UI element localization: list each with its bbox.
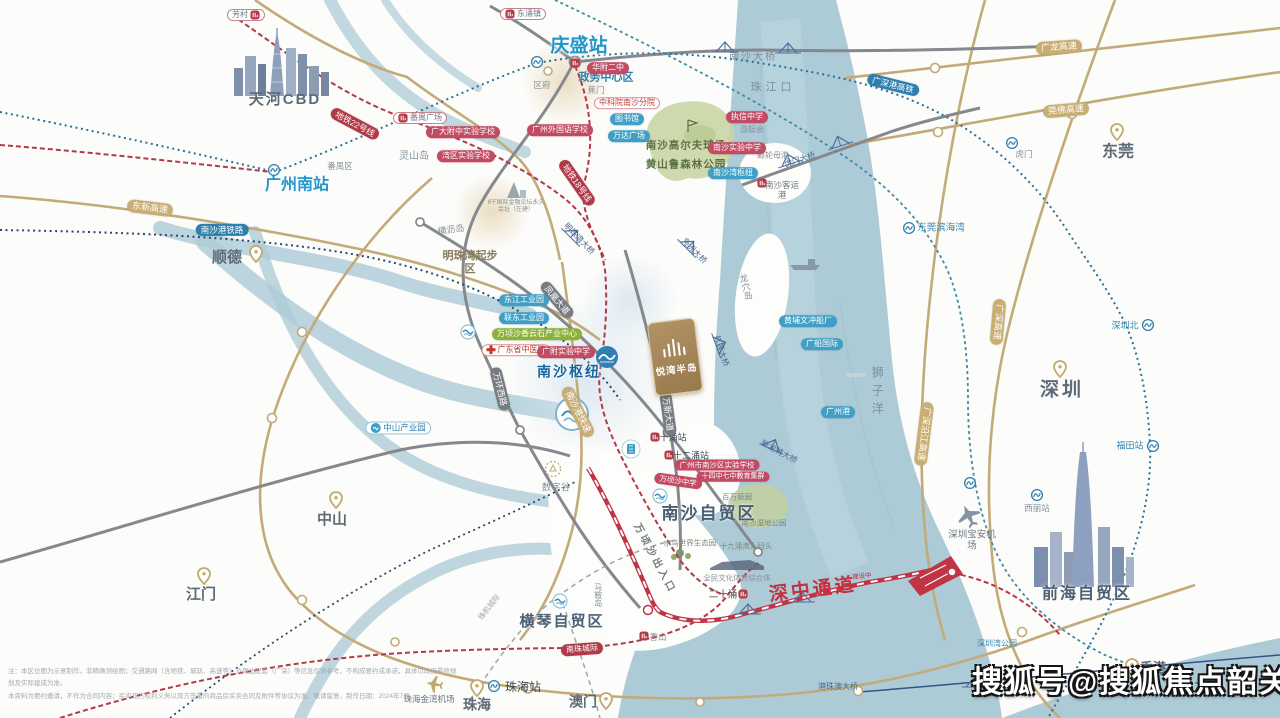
icon-xili-metro xyxy=(1031,489,1044,502)
label-nansha-shidi: 南沙湿地公园 xyxy=(742,519,787,528)
label-baiwankuiyuan: 百万葵园 xyxy=(722,493,752,502)
label-zky: 中科院南沙分院 xyxy=(594,97,660,109)
icon-gznan-metro xyxy=(268,164,281,177)
icon-keyungang-sta xyxy=(757,178,767,188)
label-qianhai-zone: 前海自贸区 xyxy=(1042,584,1132,603)
label-shuiniao: 水鸟世界生态园 xyxy=(664,539,717,548)
label-nansha-bridge: 南沙大桥 xyxy=(729,52,777,64)
label-dongguan-binhaiwan: 东莞滨海湾 xyxy=(917,222,965,233)
pin-aomen xyxy=(599,692,613,710)
label-dongguan: 东莞 xyxy=(1102,142,1134,161)
label-panyu-square: 番禺广场 xyxy=(393,112,447,124)
label-gz-foreign-school: 广州外国语学校 xyxy=(527,124,593,136)
label-nansha-hub: 南沙枢纽 xyxy=(537,364,601,381)
label-zhuhai-station: 珠海站 xyxy=(505,680,541,694)
label-shenzhen: 深圳 xyxy=(1040,380,1084,403)
icon-humen-metro xyxy=(1006,137,1019,150)
label-gzport: 广州港 xyxy=(821,406,855,418)
label-panyuqu: 番禺区 xyxy=(327,161,353,171)
label-xiangshan: 香山 xyxy=(649,632,666,642)
pin-shenzhen xyxy=(1053,360,1067,378)
label-gdfz-school: 广大附中实验学校 xyxy=(426,126,500,138)
label-qingsheng-station: 庆盛站 xyxy=(550,36,607,59)
icon-futian-metro xyxy=(1147,440,1160,453)
label-jiangmen: 江门 xyxy=(186,586,216,604)
label-hengqin-zone: 横琴自贸区 xyxy=(519,613,604,631)
label-dongchongzhen: 东涌镇 xyxy=(500,8,546,20)
icon-hengqin-zone-wave xyxy=(552,593,568,609)
icon-nansha-zone-wave xyxy=(652,488,668,504)
label-mingxiao-cluster: 十四中七中教育集群 xyxy=(697,472,770,482)
label-shuzigu: 数字谷 xyxy=(542,482,571,493)
label-youtinghui: 游艇会 xyxy=(740,125,764,135)
label-nanshaqu-school: 广州市南沙区实验学校 xyxy=(675,460,760,471)
icon-ershiyong-sta xyxy=(738,589,748,599)
icon-qingsheng-sta xyxy=(570,58,580,68)
label-yurenmatou: 十九涌渔人码头 xyxy=(720,542,773,551)
disclaimer-line2: 本资料为要约邀请，不作为合同内容；买卖双方权利义务以双方签署的商品房买卖合同及附… xyxy=(8,691,460,703)
icon-shuzigu xyxy=(544,460,562,478)
label-shunde: 顺德 xyxy=(212,249,242,267)
label-road-nanshagang-railway: 南沙港铁路 xyxy=(196,224,249,236)
disclaimer: 注：本区位图为示意制作，非精确测绘图；交通路网（含地铁、城轨、高速等）及周边配套… xyxy=(8,666,460,703)
label-dongjiang-park: 东江工业园 xyxy=(499,294,549,306)
label-xili-station: 西丽站 xyxy=(1024,503,1050,513)
qianhai-skyline xyxy=(1034,442,1134,587)
ferry-icon xyxy=(845,373,867,377)
pin-jiangmen xyxy=(197,567,211,585)
shenzhen-airport-plane-icon xyxy=(954,501,985,532)
icon-binhaiwan-metro xyxy=(903,222,916,235)
disclaimer-line1: 注：本区位图为示意制作，非精确测绘图；交通路网（含地铁、城轨、高速等）及周边配套… xyxy=(8,666,460,691)
label-mingzhuwan: 明珠湾起步区 xyxy=(442,250,498,276)
label-shenzhen-airport: 深圳宝安机场 xyxy=(947,530,997,553)
label-zhongshan: 中山 xyxy=(317,511,347,529)
label-guangzhounan-station: 广州南站 xyxy=(265,175,329,194)
label-aomen: 澳门 xyxy=(569,694,597,711)
label-iff: IFF国际金融论坛永久会址（在建） xyxy=(487,200,545,214)
label-shenzhenwan-park: 深圳湾公园 xyxy=(977,639,1017,649)
label-ershiyong: 二十涌 xyxy=(709,589,738,600)
project-building-icon xyxy=(660,337,688,360)
label-shiziyang: 狮子洋 xyxy=(870,366,884,420)
pin-zhuhai xyxy=(470,679,484,697)
icon-szbei-metro xyxy=(1142,319,1155,332)
icon-qingsheng-metro xyxy=(531,56,544,69)
label-nanshawan-hub: 南沙湾枢纽 xyxy=(708,167,758,179)
icon-zhuhai-metro xyxy=(488,680,501,693)
project-name: 悦湾半岛 xyxy=(655,359,698,378)
label-wenchong: 黄埔文冲船厂 xyxy=(779,315,837,327)
icon-shieryong-sta xyxy=(664,450,674,460)
label-guangchuan: 广船国际 xyxy=(801,338,843,350)
label-liandong-park: 联东工业园 xyxy=(499,312,549,324)
project-logo-card: 悦湾半岛 xyxy=(647,317,704,396)
label-nansha-keyungang: 南沙客运港 xyxy=(762,180,802,200)
label-zhixin: 执信中学 xyxy=(726,111,768,123)
label-futian-station: 福田站 xyxy=(1116,441,1143,452)
watermark: 搜狐号@搜狐焦点韶关站 xyxy=(972,657,1280,701)
label-zhuhai: 珠海 xyxy=(463,697,491,714)
label-nansha-middle: 南沙实验中学 xyxy=(708,142,766,154)
label-hzm-bridge: 港珠澳大桥 xyxy=(818,682,858,692)
icon-coast-metro xyxy=(964,477,977,490)
label-wqs-center: 万顷沙香云石产业中心 xyxy=(492,328,582,340)
label-lingshandao: 灵山岛 xyxy=(399,151,429,163)
icon-shiyong-sta xyxy=(650,432,660,442)
label-wanqu-school: 湾区实验学校 xyxy=(437,150,495,162)
label-zhongshan-park: 中山产业园 xyxy=(365,422,431,435)
label-huafu2: 华附二中 xyxy=(587,62,629,74)
label-zhujiangkou: 珠江口 xyxy=(751,81,796,94)
label-wanda: 万达广场 xyxy=(608,130,650,142)
pin-zhongshan xyxy=(329,491,343,509)
label-shenzhen-north: 深圳北 xyxy=(1111,321,1138,332)
pin-dongguan xyxy=(1110,123,1124,141)
map-canvas: 天河CBD顺德东莞深圳中山江门珠海澳门香港庆盛站广州南站南沙枢纽珠江口狮子洋龙穴… xyxy=(0,0,1280,718)
aerospace-poi-icon xyxy=(622,440,640,458)
icon-xiangshan-sta xyxy=(639,631,649,641)
pin-shunde xyxy=(249,245,263,263)
label-jiaomen: 蕉门 xyxy=(587,85,604,95)
label-maandao: 马鞍岛 xyxy=(593,583,603,607)
label-fangcun: 芳村 xyxy=(227,9,265,21)
label-gffz: 广附实验中学 xyxy=(537,346,595,358)
label-quanmin: 全民文化体育综合体 xyxy=(703,574,771,583)
label-humen: 虎门 xyxy=(1015,149,1032,159)
label-library: 图书馆 xyxy=(610,113,644,125)
label-tianhe-cbd: 天河CBD xyxy=(249,91,322,109)
icon-dongchong-wave xyxy=(460,324,476,340)
label-qufu: 区府 xyxy=(533,80,550,90)
